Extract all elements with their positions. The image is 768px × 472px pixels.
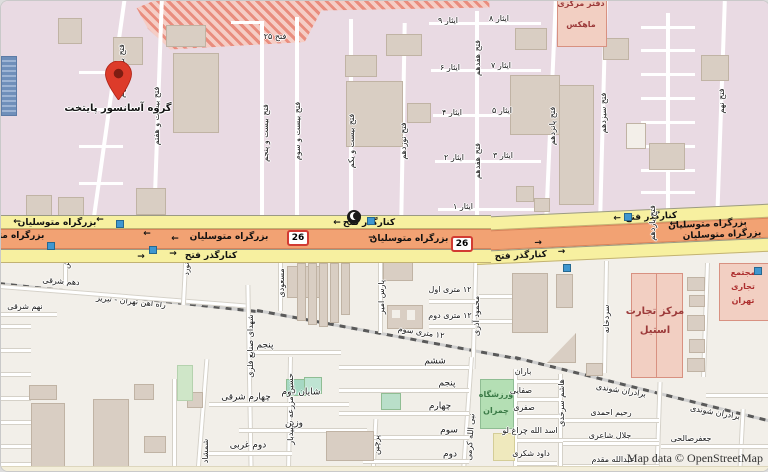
- ladder-rung: [641, 73, 695, 76]
- building: [516, 186, 534, 202]
- street-label-rahim: رحیم احمدی: [590, 409, 631, 417]
- street-stub: [231, 21, 263, 24]
- parking-row: [1, 420, 31, 425]
- street-label-fath-19: فتح نوزدهم: [400, 122, 408, 159]
- street-nohom-sharghi: [1, 312, 57, 317]
- complex-label-line3: تهران: [732, 297, 755, 305]
- building: [31, 403, 65, 471]
- street-label-baradaran-2: برادران شوندی: [689, 404, 740, 421]
- building: [136, 188, 166, 215]
- bus-stop-icon: [624, 213, 632, 221]
- map-canvas[interactable]: فتح بیست و نهم فتح بیست و هفتم فتح ۲۵ فت…: [0, 0, 768, 472]
- building: [58, 18, 82, 44]
- complex-label-line2: تجاری: [731, 283, 755, 291]
- building: [586, 363, 603, 376]
- parking-row: [1, 348, 31, 353]
- street-label-isar9: ایثار ۹: [438, 17, 458, 25]
- bus-stop-icon: [149, 246, 157, 254]
- bus-stop-icon: [367, 217, 375, 225]
- street-label-nohom-sharghi: نهم شرقی: [7, 303, 42, 311]
- street-label-vazin: وزین: [285, 419, 303, 428]
- street-panjom-west: [249, 350, 341, 355]
- street-label-baran: باران: [515, 368, 532, 376]
- building: [556, 274, 573, 308]
- steel-center-label-line2: استیل: [640, 326, 670, 337]
- street-label-sardkhaneh: سردخانه: [603, 305, 611, 334]
- highway-label: بزرگراه متوسلیان: [0, 231, 44, 241]
- complex-label-line1: مجتمع: [731, 269, 756, 277]
- street-grid-east-row: [706, 393, 768, 398]
- street-chaharom-sharghi: [209, 402, 349, 407]
- street-label-navard: نورد: [183, 263, 191, 276]
- street-label-hashem: هاشم سرخدی: [558, 379, 566, 427]
- parking-row: [1, 324, 31, 329]
- street-sheshom: [339, 365, 469, 370]
- route-shield: 26: [287, 230, 309, 246]
- street-label-fath-15: فتح پانزدهم: [549, 107, 557, 145]
- street-label-pars-amir: پارس امیر: [378, 280, 386, 314]
- street-baran: [517, 379, 559, 384]
- street-panjom: [339, 388, 469, 393]
- street-safaei: [517, 397, 559, 402]
- building: [534, 198, 550, 212]
- arrow-left-icon: ←: [613, 213, 621, 223]
- building: [26, 195, 52, 217]
- highway-label: بزرگراه متوسلیان: [370, 234, 449, 244]
- mahex-label-line1: دفتر مرکزی: [557, 0, 604, 8]
- stadium-label-line1: ورزشگاه: [479, 391, 513, 399]
- street-label-nabiollah: نبی الله کرمی: [465, 413, 477, 461]
- building: [512, 273, 548, 333]
- building: [326, 431, 374, 461]
- side-road-south: [0, 249, 491, 263]
- street-label-isar2: ایثار ۲: [444, 154, 464, 162]
- route-shield: 26: [451, 236, 473, 252]
- building-courtyard: [407, 310, 415, 320]
- pin-label: گروه آسانسور پایتخت: [64, 104, 171, 115]
- building: [144, 436, 166, 453]
- street-12metri-2: [429, 324, 475, 329]
- map-attribution[interactable]: Map data © OpenStreetMap: [627, 451, 763, 466]
- street-rahim: [563, 418, 659, 423]
- arrow-left-icon: ←: [13, 217, 21, 227]
- building: [341, 263, 350, 315]
- arrow-right-icon: →: [534, 238, 542, 248]
- building-green: [381, 393, 401, 410]
- solar-building: [1, 56, 17, 116]
- mahex-label-line2: ماهکس: [566, 21, 595, 29]
- building: [689, 339, 705, 353]
- street-label-fath-21: فتح بیست و یکم: [348, 114, 356, 169]
- parking-row: [1, 396, 31, 401]
- bottom-edge-road: [1, 466, 768, 472]
- arrow-right-icon: →: [137, 252, 145, 262]
- street-label-mahmoud-azari: محمود آذری: [473, 296, 481, 336]
- street-dovom-gharbi: [204, 451, 292, 456]
- building: [134, 384, 154, 400]
- arrow-left-icon: ←: [96, 215, 104, 225]
- street-label-fath-23: فتح بیست و سوم: [294, 102, 302, 160]
- mosque-icon: [347, 210, 361, 224]
- arrow-left-icon: ←: [333, 218, 341, 228]
- ladder-rung: [641, 191, 695, 194]
- building: [166, 25, 206, 47]
- highway-label: بزرگراه متوسلیان: [18, 218, 97, 228]
- street-label-shohada: شهدای صنایع فلزی: [247, 314, 255, 377]
- building: [93, 399, 129, 472]
- building: [626, 123, 646, 149]
- building: [515, 28, 547, 50]
- steel-center-label-line1: مرکز تجارت: [626, 307, 684, 318]
- building: [297, 263, 306, 321]
- street-label-jafar: جعفرصالحی: [671, 435, 712, 443]
- street-label-fath-17: فتح هفدهم: [474, 143, 482, 179]
- street-label-isar5: ایثار ۵: [492, 107, 512, 115]
- building: [559, 85, 594, 205]
- street-label-isar1: ایثار ۱: [453, 203, 473, 211]
- street-label-panjom-west: پنجم: [256, 341, 273, 350]
- street-label-parchin: پرچین: [373, 435, 381, 455]
- arrow-right-icon: →: [169, 249, 177, 259]
- street-label-masoudi: مسعودی: [278, 268, 286, 297]
- street-label-fath-9: فتح نهم: [718, 88, 726, 113]
- ladder-rung: [641, 26, 695, 29]
- street-label-panjom: پنجم: [438, 379, 455, 388]
- street-label-isar8: ایثار ۸: [489, 15, 509, 23]
- arrow-left-icon: ←: [143, 229, 151, 239]
- building: [173, 53, 219, 133]
- street-label-dovom-gharbi: دوم غربی: [230, 441, 266, 450]
- street-label-isar3: ایثار ۳: [493, 152, 513, 160]
- street-label-hossein: حسین مزرعه سپیدبار: [287, 373, 295, 445]
- park-green: [177, 365, 193, 401]
- stadium-label-line2: چمران: [483, 407, 509, 415]
- arrow-left-icon: ←: [669, 219, 677, 229]
- ladder-rung: [641, 121, 695, 124]
- street-stub: [79, 182, 123, 185]
- building: [701, 55, 729, 81]
- street-label-dovom: دوم: [443, 450, 457, 459]
- street-label-fath-17: فتح هفدهم: [474, 40, 482, 76]
- building-courtyard: [392, 310, 400, 318]
- street-label-fath-25-short: فتح ۲۵: [264, 33, 287, 41]
- building: [345, 55, 377, 77]
- street-label-fath-13: فتح سیزدهم: [600, 93, 608, 134]
- building: [547, 333, 576, 363]
- street-label-12metri-1: ۱۲ متری اول: [429, 286, 472, 294]
- street-fath-11: [666, 13, 670, 219]
- street-label-dav ood: داود شکری: [512, 450, 550, 458]
- street-label-chaharom-sharghi: چهارم شرقی: [221, 393, 271, 402]
- street-label-chaharom: چهارم: [429, 402, 451, 411]
- street-label-asadollah: اسد الله چراغ لو: [502, 427, 557, 435]
- building: [319, 263, 328, 327]
- building: [308, 263, 317, 325]
- arrow-right-icon: →: [558, 247, 566, 257]
- building: [687, 315, 705, 331]
- building: [330, 263, 339, 323]
- parking-row: [1, 372, 31, 377]
- street-dovom: [363, 459, 469, 464]
- stadium-building: [480, 379, 514, 429]
- street-12metri-1: [429, 299, 475, 304]
- ladder-rung: [641, 97, 695, 100]
- arrow-right-icon: →: [368, 233, 376, 243]
- street-label-baradaran-1: برادران شوندی: [595, 383, 646, 399]
- street-safari: [517, 414, 559, 419]
- street-label-sheshom: ششم: [424, 357, 446, 366]
- street-label-isar7: ایثار ۷: [491, 62, 511, 70]
- building: [687, 277, 705, 291]
- building: [689, 295, 705, 307]
- street-stub: [79, 145, 123, 148]
- street-label-shemshad: شمشاد: [202, 439, 210, 463]
- location-pin-icon[interactable]: [105, 61, 132, 100]
- street-label-fath-27: فتح بیست و هفتم: [153, 87, 161, 146]
- street-label-safari: صفری: [513, 404, 535, 412]
- street-chaharom: [339, 411, 469, 416]
- street-label-jalal: جلال شاعری: [589, 432, 632, 440]
- street-jafar: [661, 444, 768, 449]
- building: [29, 385, 57, 400]
- bus-stop-icon: [47, 242, 55, 250]
- street-label-fath-25: فتح بیست و پنجم: [262, 104, 270, 162]
- building: [687, 358, 705, 372]
- building: [407, 103, 431, 123]
- side-road-label: کنارگذر فتح: [185, 251, 237, 261]
- building: [649, 143, 685, 170]
- street-label-isar6: ایثار ۶: [440, 64, 460, 72]
- street-label-sevom: سوم: [440, 426, 458, 435]
- bus-stop-icon: [754, 267, 762, 275]
- street-label-12metri-2: ۱۲ متری دوم: [428, 312, 471, 320]
- arrow-left-icon: ←: [171, 234, 179, 244]
- street-label-isar4: ایثار ۴: [442, 109, 462, 117]
- highway-label: بزرگراه متوسلیان: [190, 232, 269, 242]
- ladder-rung: [641, 49, 695, 52]
- parking-row: [1, 444, 31, 449]
- street-label-fath-11: فتح یازدهم: [649, 205, 657, 241]
- building: [386, 34, 422, 56]
- highway-band-west: بزرگراه متوسلیان ← ← بزرگراه متوسلیان ← …: [0, 215, 491, 263]
- street-jalal: [563, 441, 659, 446]
- bus-stop-icon: [563, 264, 571, 272]
- street-label-safaei: صفایی: [510, 387, 532, 395]
- street-label-dahom-sharghi: دهم شرقی: [42, 277, 80, 288]
- bus-stop-icon: [116, 220, 124, 228]
